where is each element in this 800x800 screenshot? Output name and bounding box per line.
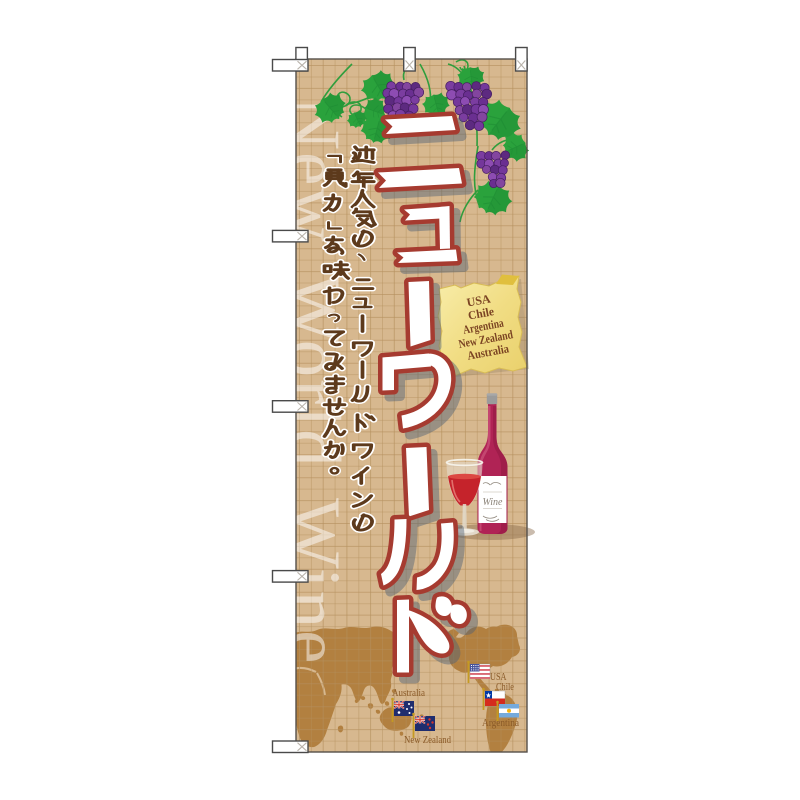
svg-text:New Zealand: New Zealand: [404, 735, 452, 746]
svg-text:Argentina: Argentina: [482, 718, 519, 729]
svg-text:Australia: Australia: [392, 688, 425, 699]
svg-text:Chile: Chile: [496, 682, 514, 693]
svg-text:Wine: Wine: [483, 497, 504, 508]
